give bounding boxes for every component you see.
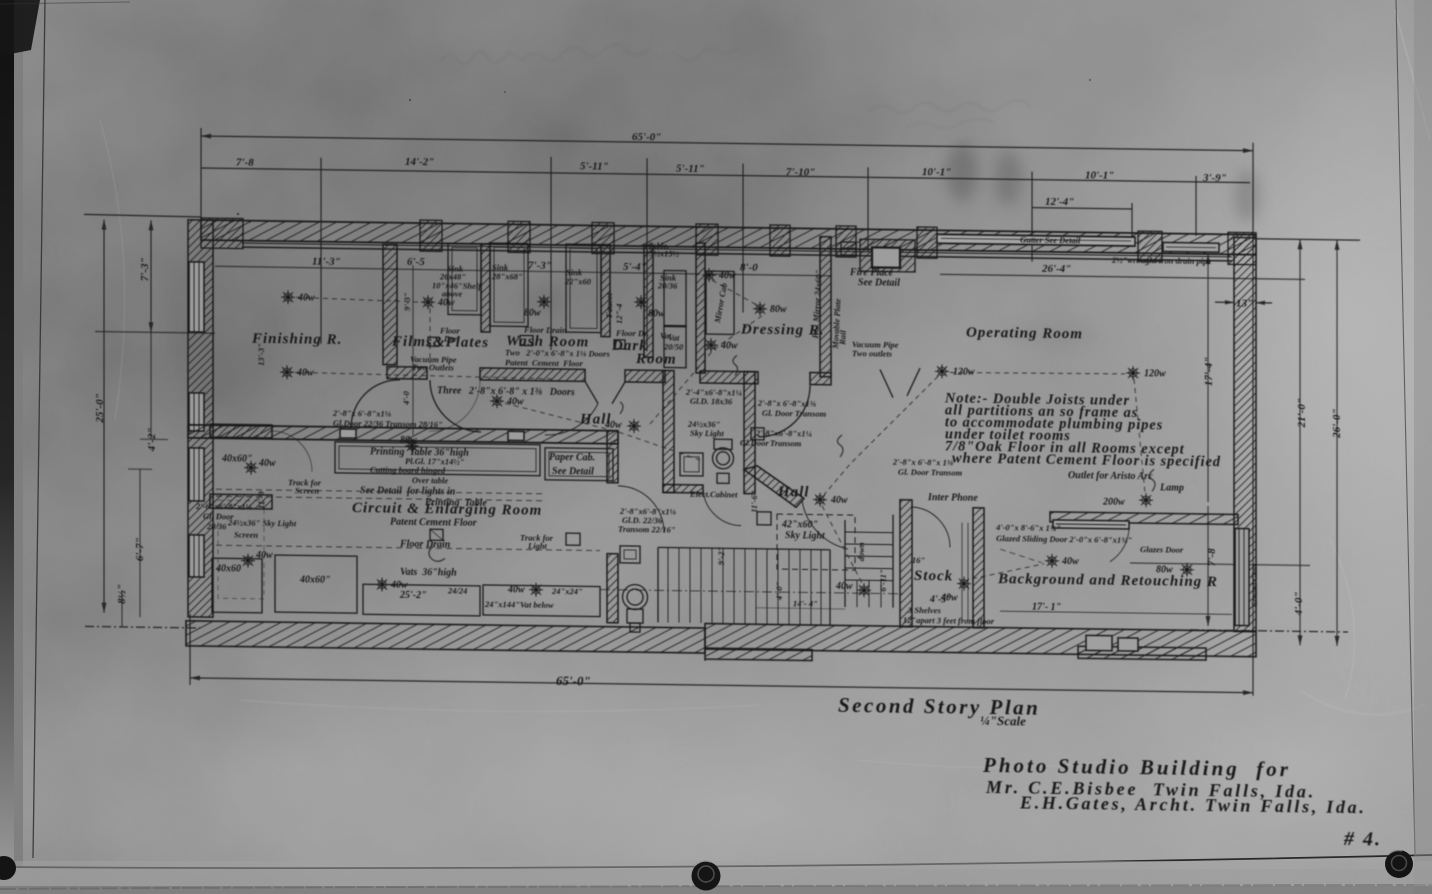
svg-text:Glazes Door: Glazes Door (1140, 544, 1184, 555)
svg-text:Screen: Screen (295, 485, 319, 495)
svg-text:9'-2": 9'-2" (716, 547, 726, 566)
svg-text:40w: 40w (720, 340, 738, 351)
svg-text:40w: 40w (604, 420, 622, 431)
svg-text:40w: 40w (1061, 556, 1079, 567)
svg-text:40w: 40w (506, 396, 524, 407)
svg-text:11'-6": 11'-6" (749, 490, 759, 513)
svg-text:Lamp: Lamp (1159, 482, 1184, 493)
svg-text:24/24: 24/24 (447, 585, 467, 595)
svg-text:3 Shelves: 3 Shelves (907, 605, 942, 615)
svg-text:200w: 200w (1102, 497, 1125, 508)
svg-text:12'-4": 12'-4" (1045, 196, 1074, 208)
svg-text:40w: 40w (507, 584, 525, 595)
svg-text:40w: 40w (258, 458, 276, 469)
svg-text:42"x60": 42"x60" (781, 519, 818, 531)
svg-text:24"x144"Vat below: 24"x144"Vat below (484, 599, 554, 610)
svg-text:Sky Light: Sky Light (690, 428, 724, 438)
svg-text:40w: 40w (718, 270, 736, 281)
svg-text:120w: 120w (1144, 368, 1166, 379)
svg-text:Floor Drain: Floor Drain (399, 539, 451, 551)
svg-text:16": 16" (912, 555, 925, 565)
svg-text:6'-7": 6'-7" (134, 537, 146, 561)
svg-text:Cutting board hinged: Cutting board hinged (370, 464, 446, 475)
svg-text:14'- 4": 14'- 4" (793, 598, 818, 608)
svg-text:13": 13" (1236, 297, 1253, 309)
svg-text:Ground Glass: Ground Glass (1250, 563, 1259, 606)
svg-text:40w: 40w (297, 292, 315, 303)
svg-text:Printing Table: Printing Table (425, 497, 487, 509)
svg-text:11'-3": 11'-3" (312, 256, 341, 268)
svg-text:24"x24": 24"x24" (551, 586, 583, 596)
svg-text:Gutter See Detail: Gutter See Detail (1020, 234, 1081, 245)
svg-text:Paper Cab.: Paper Cab. (549, 452, 595, 464)
svg-text:7'-10": 7'-10" (786, 166, 815, 178)
svg-text:Glazed Sliding Door 2'-0"x 6'-: Glazed Sliding Door 2'-0"x 6'-8"x1¾" (996, 533, 1133, 545)
svg-text:7'-3": 7'-3" (139, 257, 151, 281)
svg-text:Rail: Rail (837, 329, 848, 346)
svg-text:26'-4": 26'-4" (1041, 263, 1071, 275)
svg-text:40x60": 40x60" (299, 574, 331, 585)
svg-text:40w: 40w (437, 297, 455, 308)
svg-text:3'-9": 3'-9" (1202, 172, 1227, 184)
svg-text:7'-8: 7'-8 (236, 156, 254, 168)
svg-text:Elect.Cabinet: Elect.Cabinet (689, 489, 738, 500)
svg-text:21'-0": 21'-0" (1296, 398, 1308, 428)
svg-text:Gl.Door 22/36 Transom 28/16": Gl.Door 22/36 Transom 28/16" (333, 418, 443, 430)
svg-text:Transom 22/16": Transom 22/16" (618, 524, 676, 535)
svg-text:Vats 36"high: Vats 36"high (400, 567, 457, 579)
svg-text:Stock: Stock (914, 568, 953, 585)
svg-text:15½x15½: 15½x15½ (645, 248, 680, 258)
svg-text:Three 2'-8"x 6'-8" x 1⅜ Do: Three 2'-8"x 6'-8" x 1⅜ Doors (437, 385, 575, 398)
svg-text:24½x36" Sky Light: 24½x36" Sky Light (227, 517, 297, 528)
svg-text:Two Outlets: Two Outlets (412, 362, 455, 373)
svg-text:See Detail: See Detail (858, 277, 900, 289)
svg-text:Dre: Dre (443, 333, 457, 343)
svg-text:9'-3": 9'-3" (402, 292, 412, 311)
svg-text:80w: 80w (1156, 564, 1173, 575)
svg-text:11'-9: 11'-9 (256, 491, 266, 509)
svg-text:Films&Plates: Films&Plates (391, 334, 489, 351)
svg-text:8½": 8½" (116, 584, 128, 604)
svg-text:Floor Drain: Floor Drain (523, 325, 567, 336)
svg-text:7'-8: 7'-8 (1206, 548, 1218, 566)
svg-text:25'-2": 25'-2" (399, 590, 427, 601)
svg-text:# 4.: # 4. (1343, 828, 1382, 851)
svg-text:20/50: 20/50 (663, 341, 684, 351)
svg-text:6'-5: 6'-5 (407, 256, 425, 268)
svg-text:80w: 80w (770, 304, 787, 315)
svg-text:¼"Scale: ¼"Scale (980, 713, 1026, 729)
svg-text:80w: 80w (400, 435, 417, 446)
svg-text:Hall: Hall (777, 484, 810, 500)
svg-text:Background and Retouching R: Background and Retouching R (997, 571, 1218, 590)
svg-text:See Detail: See Detail (552, 466, 594, 478)
svg-text:5'-11": 5'-11" (580, 160, 609, 172)
svg-text:5'-4": 5'-4" (623, 261, 647, 273)
svg-text:20/36: 20/36 (206, 521, 227, 531)
svg-text:Vat: Vat (660, 330, 672, 340)
svg-text:80w: 80w (524, 308, 541, 319)
svg-text:40w: 40w (255, 550, 273, 561)
svg-text:Operating Room: Operating Room (966, 325, 1083, 343)
svg-text:Floor Dr.: Floor Dr. (615, 328, 649, 338)
svg-text:Faucet: Faucet (604, 292, 614, 318)
svg-text:Patent Cement Floor: Patent Cement Floor (390, 517, 477, 529)
svg-text:120w: 120w (953, 367, 975, 378)
svg-text:17'-4": 17'-4" (1203, 357, 1215, 386)
svg-text:Sky Light: Sky Light (785, 530, 826, 542)
svg-text:Gl. Door Transom: Gl. Door Transom (762, 408, 827, 419)
svg-text:65'-0": 65'-0" (632, 131, 661, 143)
svg-text:Gl. Door Transom: Gl. Door Transom (898, 467, 963, 478)
svg-text:Light: Light (527, 541, 548, 551)
svg-text:4'-2": 4'-2" (146, 427, 158, 452)
svg-text:40x60: 40x60 (215, 563, 241, 574)
svg-text:4'-0"x 8'-6"x 1¾": 4'-0"x 8'-6"x 1¾" (995, 522, 1061, 533)
svg-text:8'-0: 8'-0 (740, 262, 758, 274)
svg-text:12"-4: 12"-4 (614, 303, 624, 323)
svg-text:Outlet for Aristo Arc: Outlet for Aristo Arc (1068, 470, 1153, 482)
svg-text:down: down (856, 542, 866, 561)
svg-text:7'-3": 7'-3" (528, 260, 552, 272)
svg-text:5'-11": 5'-11" (676, 163, 705, 175)
svg-text:Room: Room (635, 351, 677, 368)
svg-text:Transom: Transom (770, 438, 802, 448)
svg-text:Gl.Door: Gl.Door (740, 438, 769, 448)
svg-text:40x60": 40x60" (221, 453, 253, 464)
svg-text:10'-1": 10'-1" (922, 166, 951, 178)
svg-text:80w: 80w (648, 308, 665, 319)
svg-text:12"apart 3 feet from floor: 12"apart 3 feet from floor (903, 615, 995, 626)
svg-text:40w: 40w (835, 581, 853, 592)
svg-text:4'-0: 4'-0 (401, 390, 411, 406)
svg-text:10'-1": 10'-1" (1085, 169, 1114, 181)
svg-text:40w: 40w (296, 367, 314, 378)
svg-text:Over table: Over table (412, 475, 448, 486)
svg-text:26'-0": 26'-0" (1331, 408, 1343, 438)
svg-text:4'-0": 4'-0" (1293, 591, 1305, 616)
svg-text:See Detail for lights in: See Detail for lights in (360, 485, 456, 497)
svg-text:20/36: 20/36 (657, 280, 678, 290)
svg-text:40w: 40w (830, 495, 848, 506)
svg-text:Gl.D. 18x36: Gl.D. 18x36 (690, 396, 733, 407)
svg-text:22"x60: 22"x60 (564, 276, 592, 286)
svg-text:4'-5": 4'-5" (929, 594, 952, 605)
svg-text:14'-2": 14'-2" (405, 156, 434, 168)
svg-text:Inter Phone: Inter Phone (927, 492, 978, 504)
svg-text:4'-0": 4'-0" (774, 581, 784, 601)
svg-text:Two outlets: Two outlets (852, 348, 893, 359)
svg-text:25'-0": 25'-0" (94, 393, 106, 423)
svg-text:2½"wrought iron drain pipe: 2½"wrought iron drain pipe (1111, 255, 1211, 266)
svg-text:Screen: Screen (234, 529, 258, 539)
svg-text:65'-0": 65'-0" (556, 673, 591, 688)
svg-text:Patent Cement Floor: Patent Cement Floor (505, 357, 584, 368)
svg-text:28"x68": 28"x68" (491, 271, 523, 281)
svg-text:6'-11": 6'-11" (878, 569, 888, 592)
svg-text:Finishing R.: Finishing R. (251, 331, 342, 348)
